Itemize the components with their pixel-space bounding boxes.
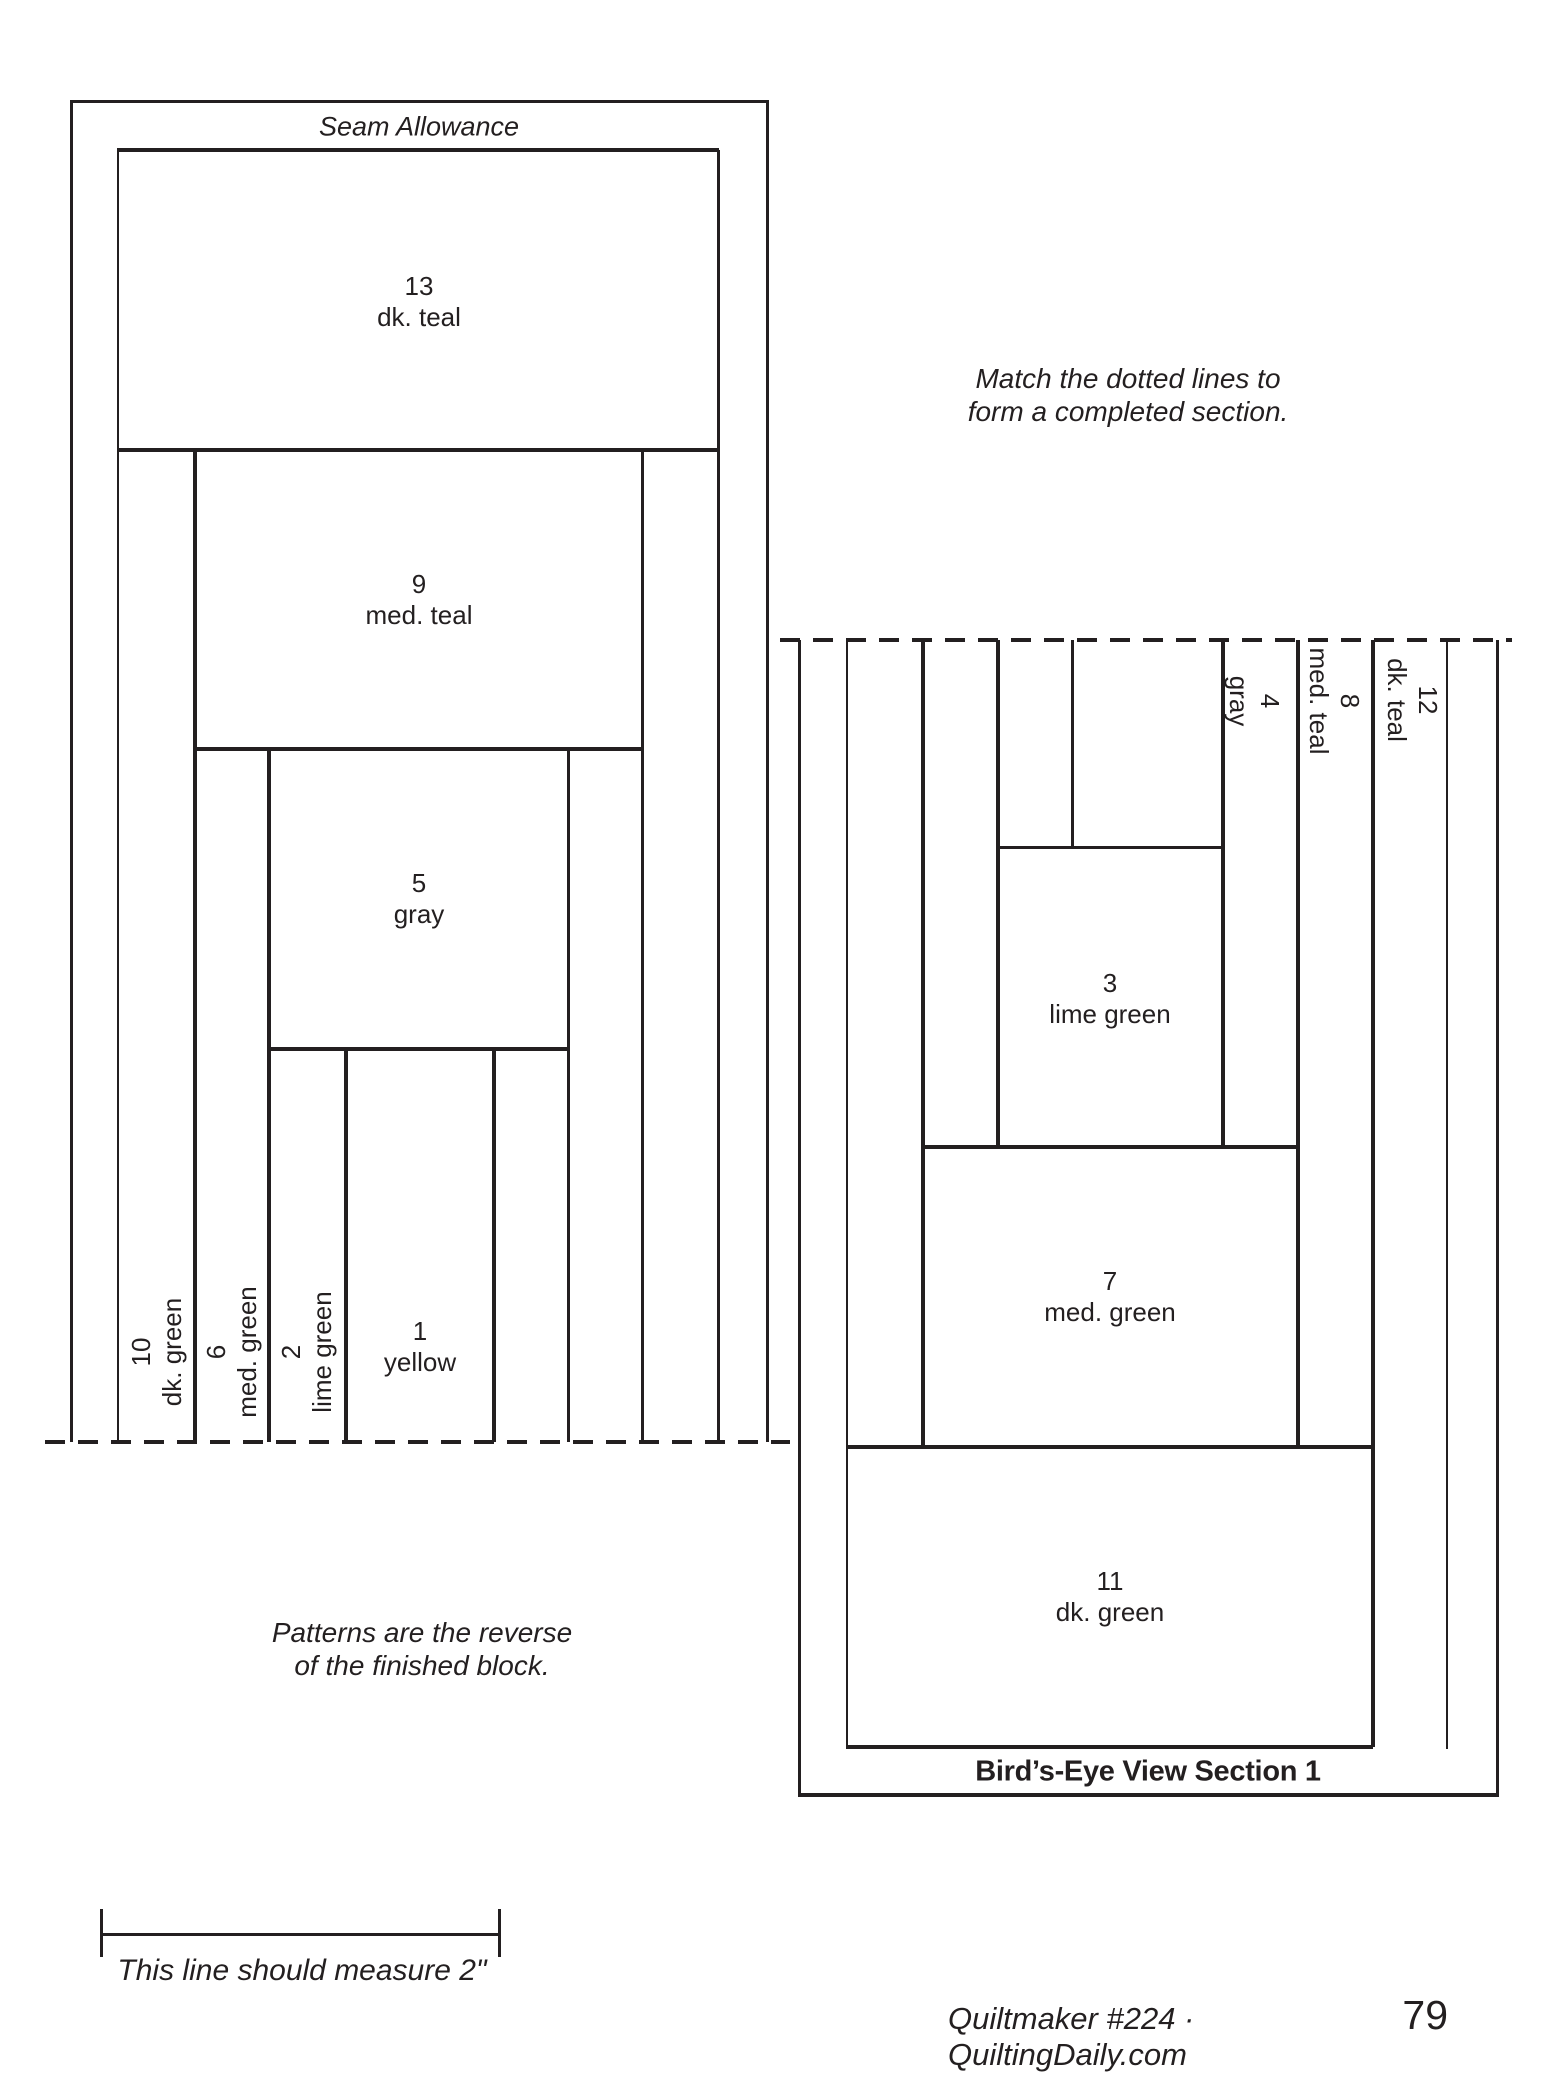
piece-5-color: gray (394, 899, 445, 930)
piece11-right-line (1371, 640, 1375, 1747)
piece-8-color: med. teal (1303, 648, 1334, 755)
patterns-reverse-note: Patterns are the reverse of the finished… (272, 1616, 572, 1682)
piece-12-color: dk. teal (1381, 658, 1412, 742)
piece5-bottom-line (267, 1047, 569, 1051)
piece-10-number: 10 (126, 1298, 157, 1406)
section-join-dashed-line (45, 1440, 790, 1444)
piece-7-label: 7 med. green (1044, 1266, 1176, 1328)
footer-credit: Quiltmaker #224 · QuiltingDaily.com (948, 2001, 1378, 2073)
piece-10-color: dk. green (157, 1298, 188, 1406)
match-note-line2: form a completed section. (968, 395, 1289, 428)
reverse-note-line1: Patterns are the reverse (272, 1616, 572, 1649)
piece-1-number: 1 (384, 1316, 456, 1347)
top-center-divider-line (1071, 640, 1074, 848)
piece9-bottom-line (193, 747, 643, 751)
piece-8-number: 8 (1334, 648, 1365, 755)
reverse-note-line2: of the finished block. (272, 1649, 572, 1682)
match-dotted-lines-note: Match the dotted lines to form a complet… (968, 362, 1289, 428)
right-strip-line-b (641, 450, 644, 1442)
magazine-page: { "seam_allowance_label": "Seam Allowanc… (0, 0, 1550, 2100)
piece-3-label: 3 lime green (1049, 968, 1170, 1030)
piece-9-label: 9 med. teal (366, 569, 473, 631)
piece-9-number: 9 (366, 569, 473, 600)
piece-11-number: 11 (1056, 1566, 1164, 1597)
piece13-bottom-line (117, 448, 719, 452)
piece-11-color: dk. green (1056, 1597, 1164, 1628)
measure-line-right-tick (498, 1909, 501, 1957)
measure-line-label: This line should measure 2" (117, 1954, 486, 1988)
piece-5-number: 5 (394, 868, 445, 899)
piece-9-color: med. teal (366, 600, 473, 631)
piece10-right-line (193, 450, 197, 1442)
piece1-right-line (492, 1049, 496, 1442)
piece-11-label: 11 dk. green (1056, 1566, 1164, 1628)
piece-2-color: lime green (307, 1291, 338, 1412)
piece-1-label: 1 yellow (384, 1316, 456, 1378)
piece3-left-line (996, 640, 1000, 1147)
piece-8-label: 8 med. teal (1303, 648, 1365, 755)
measure-line-left-tick (100, 1909, 103, 1957)
footer-page-number: 79 (1402, 1992, 1448, 2039)
piece-3-color: lime green (1049, 999, 1170, 1030)
left-margin-line (117, 150, 119, 1442)
piece-12-label: 12 dk. teal (1381, 658, 1443, 742)
right-margin-line (717, 150, 720, 1442)
piece11-bottom-line (846, 1745, 1373, 1749)
piece-4-number: 4 (1254, 676, 1285, 727)
seam-allowance-label: Seam Allowance (319, 112, 519, 143)
piece-6-label: 6 med. green (201, 1286, 263, 1418)
top-center-box-bottom-line (996, 846, 1223, 849)
piece6-right-line (267, 749, 271, 1442)
piece7-right-line (1296, 640, 1300, 1447)
piece-13-number: 13 (377, 271, 461, 302)
birdseye-join-dashed-line (780, 638, 1512, 642)
piece-7-color: med. green (1044, 1297, 1176, 1328)
piece-6-color: med. green (232, 1286, 263, 1418)
birdseye-left-margin-line (846, 640, 848, 1747)
piece-4-label: 4 gray (1223, 676, 1285, 727)
piece7-bottom-line (846, 1445, 1373, 1449)
piece-13-color: dk. teal (377, 302, 461, 333)
piece-1-color: yellow (384, 1347, 456, 1378)
piece7-left-line (921, 640, 925, 1447)
right-strip-line-a (567, 749, 570, 1442)
piece-2-label: 2 lime green (276, 1291, 338, 1412)
page-footer: Quiltmaker #224 · QuiltingDaily.com 79 (948, 1992, 1448, 2073)
piece3-bottom-line (921, 1145, 1298, 1149)
piece-7-number: 7 (1044, 1266, 1176, 1297)
piece-2-number: 2 (276, 1291, 307, 1412)
piece13-top-line (117, 148, 719, 152)
piece-5-label: 5 gray (394, 868, 445, 930)
piece-6-number: 6 (201, 1286, 232, 1418)
piece-4-color: gray (1223, 676, 1254, 727)
birdseye-caption: Bird’s-Eye View Section 1 (975, 1756, 1320, 1789)
measure-line (101, 1933, 501, 1936)
piece-10-label: 10 dk. green (126, 1298, 188, 1406)
piece1-left-line (344, 1049, 348, 1442)
piece-13-label: 13 dk. teal (377, 271, 461, 333)
piece-3-number: 3 (1049, 968, 1170, 999)
birdseye-right-margin-line (1446, 640, 1448, 1749)
piece-12-number: 12 (1412, 658, 1443, 742)
match-note-line1: Match the dotted lines to (968, 362, 1289, 395)
